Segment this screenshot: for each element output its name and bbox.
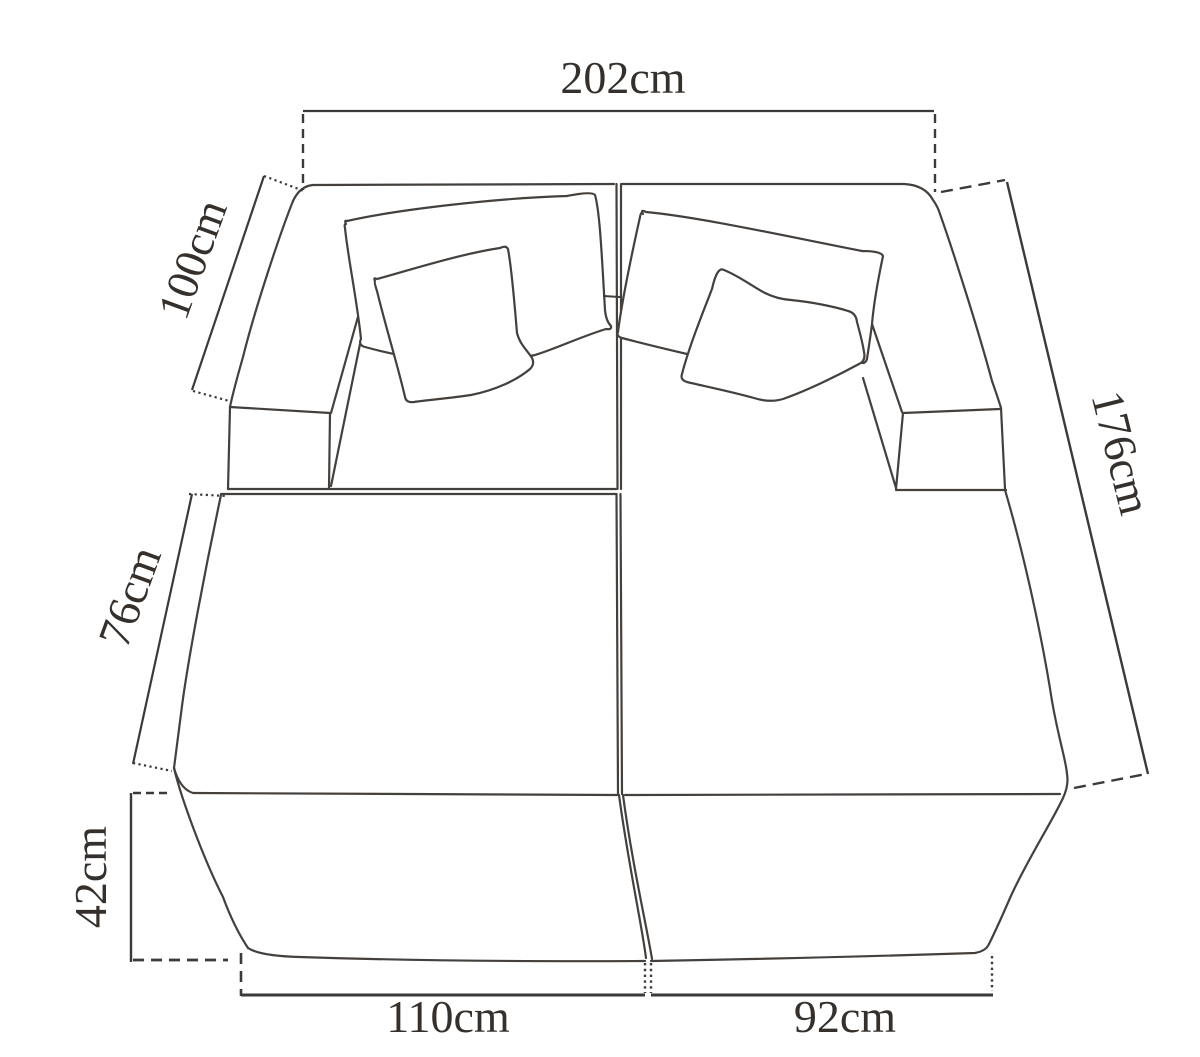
- svg-text:92cm: 92cm: [794, 991, 896, 1042]
- svg-text:42cm: 42cm: [65, 826, 116, 928]
- svg-text:202cm: 202cm: [560, 52, 685, 103]
- svg-text:110cm: 110cm: [386, 991, 510, 1042]
